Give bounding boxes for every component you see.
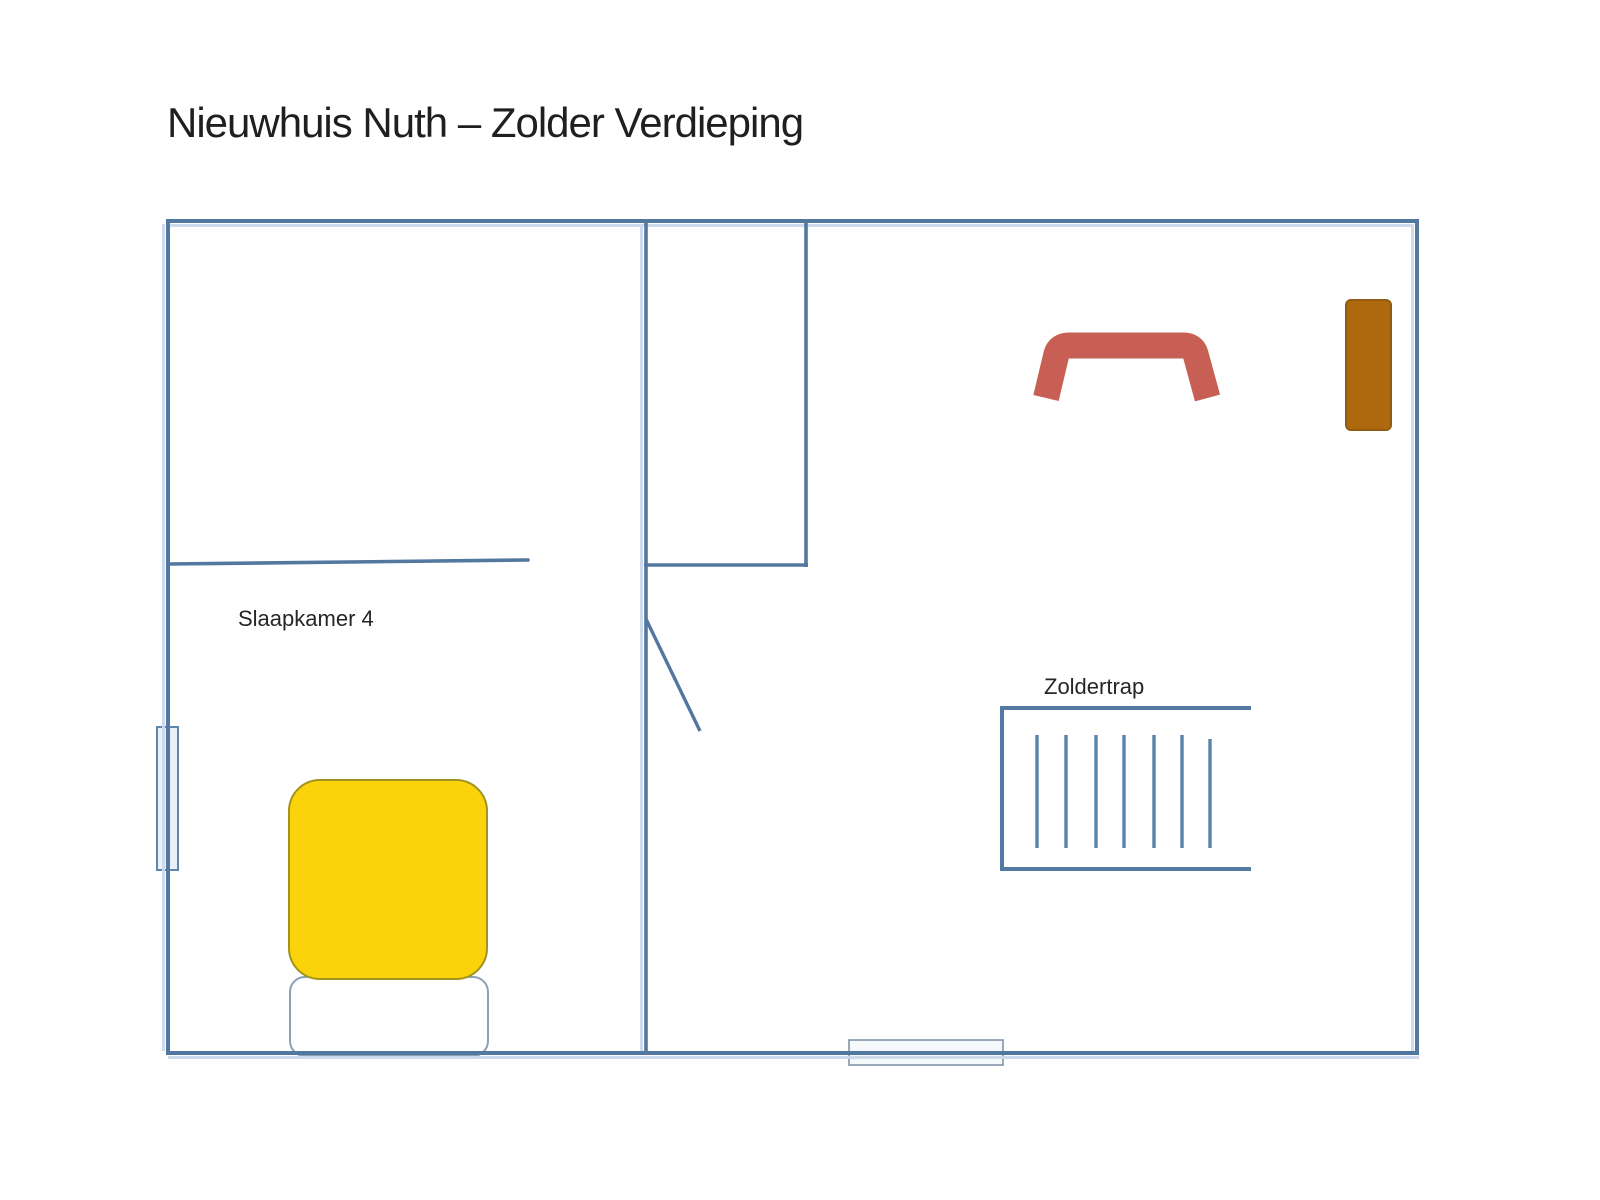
svg-text:Nieuwhuis Nuth – Zolder Verdie: Nieuwhuis Nuth – Zolder Verdieping [167,99,803,146]
svg-text:Slaapkamer 4: Slaapkamer 4 [238,606,374,631]
svg-text:Zoldertrap: Zoldertrap [1044,674,1144,699]
